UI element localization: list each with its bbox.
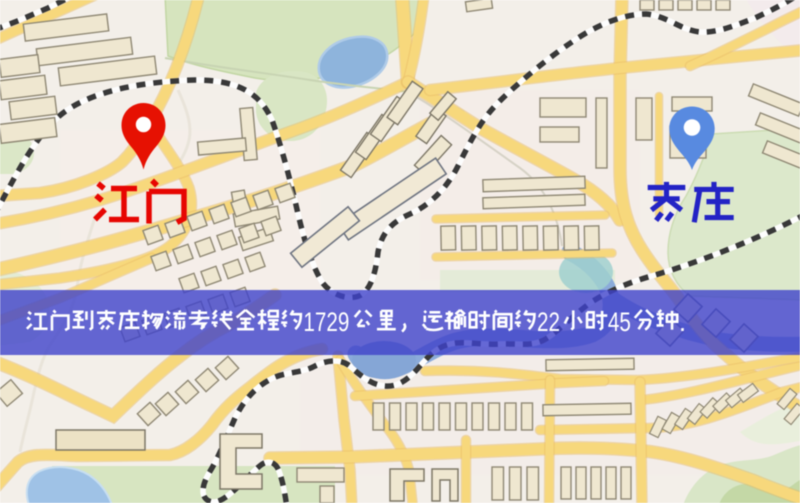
svg-text:.: . <box>679 307 687 337</box>
svg-text:22: 22 <box>537 307 560 337</box>
svg-text:45: 45 <box>608 307 631 337</box>
svg-text:1729: 1729 <box>303 307 349 337</box>
